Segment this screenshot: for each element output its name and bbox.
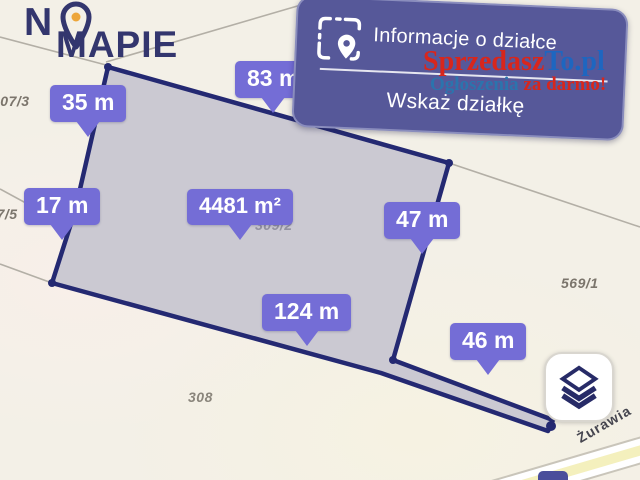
- logo-word-mapie: MAPIE: [56, 24, 178, 66]
- layers-button[interactable]: [544, 352, 614, 422]
- parcel-info-panel[interactable]: Informacje o działce Wskaż działkę: [291, 0, 628, 141]
- info-panel-subtitle: Wskaż działkę: [386, 89, 525, 119]
- measurement-badge-46m: 46 m: [450, 323, 526, 360]
- logo-letter-n: N: [24, 1, 52, 45]
- parcel-label-308: 308: [188, 389, 213, 405]
- layers-icon: [556, 364, 602, 410]
- info-panel-divider: [320, 68, 608, 83]
- measurement-badge-35m: 35 m: [50, 85, 126, 122]
- measurement-badge-47m: 47 m: [384, 202, 460, 239]
- partial-badge-bottom: [538, 471, 568, 480]
- road-zurawia: [430, 433, 640, 480]
- info-panel-title: Informacje o działce: [373, 24, 558, 55]
- logo-pin-dot: [72, 13, 81, 22]
- parcel-label-307-5: 307/5: [0, 206, 18, 222]
- measurement-badge-17m: 17 m: [24, 188, 100, 225]
- measurement-badge-124m: 124 m: [262, 294, 351, 331]
- map-canvas[interactable]: Żurawia 307/3 307/5 569/1 308 309/2 35 m…: [0, 0, 640, 480]
- parcel-label-569-1: 569/1: [561, 275, 599, 291]
- area-badge: 4481 m²: [187, 189, 293, 225]
- scan-parcel-icon: [314, 14, 364, 64]
- parcel-label-307-3: 307/3: [0, 93, 30, 109]
- logo-na-mapie: N MAPIE: [22, 0, 197, 62]
